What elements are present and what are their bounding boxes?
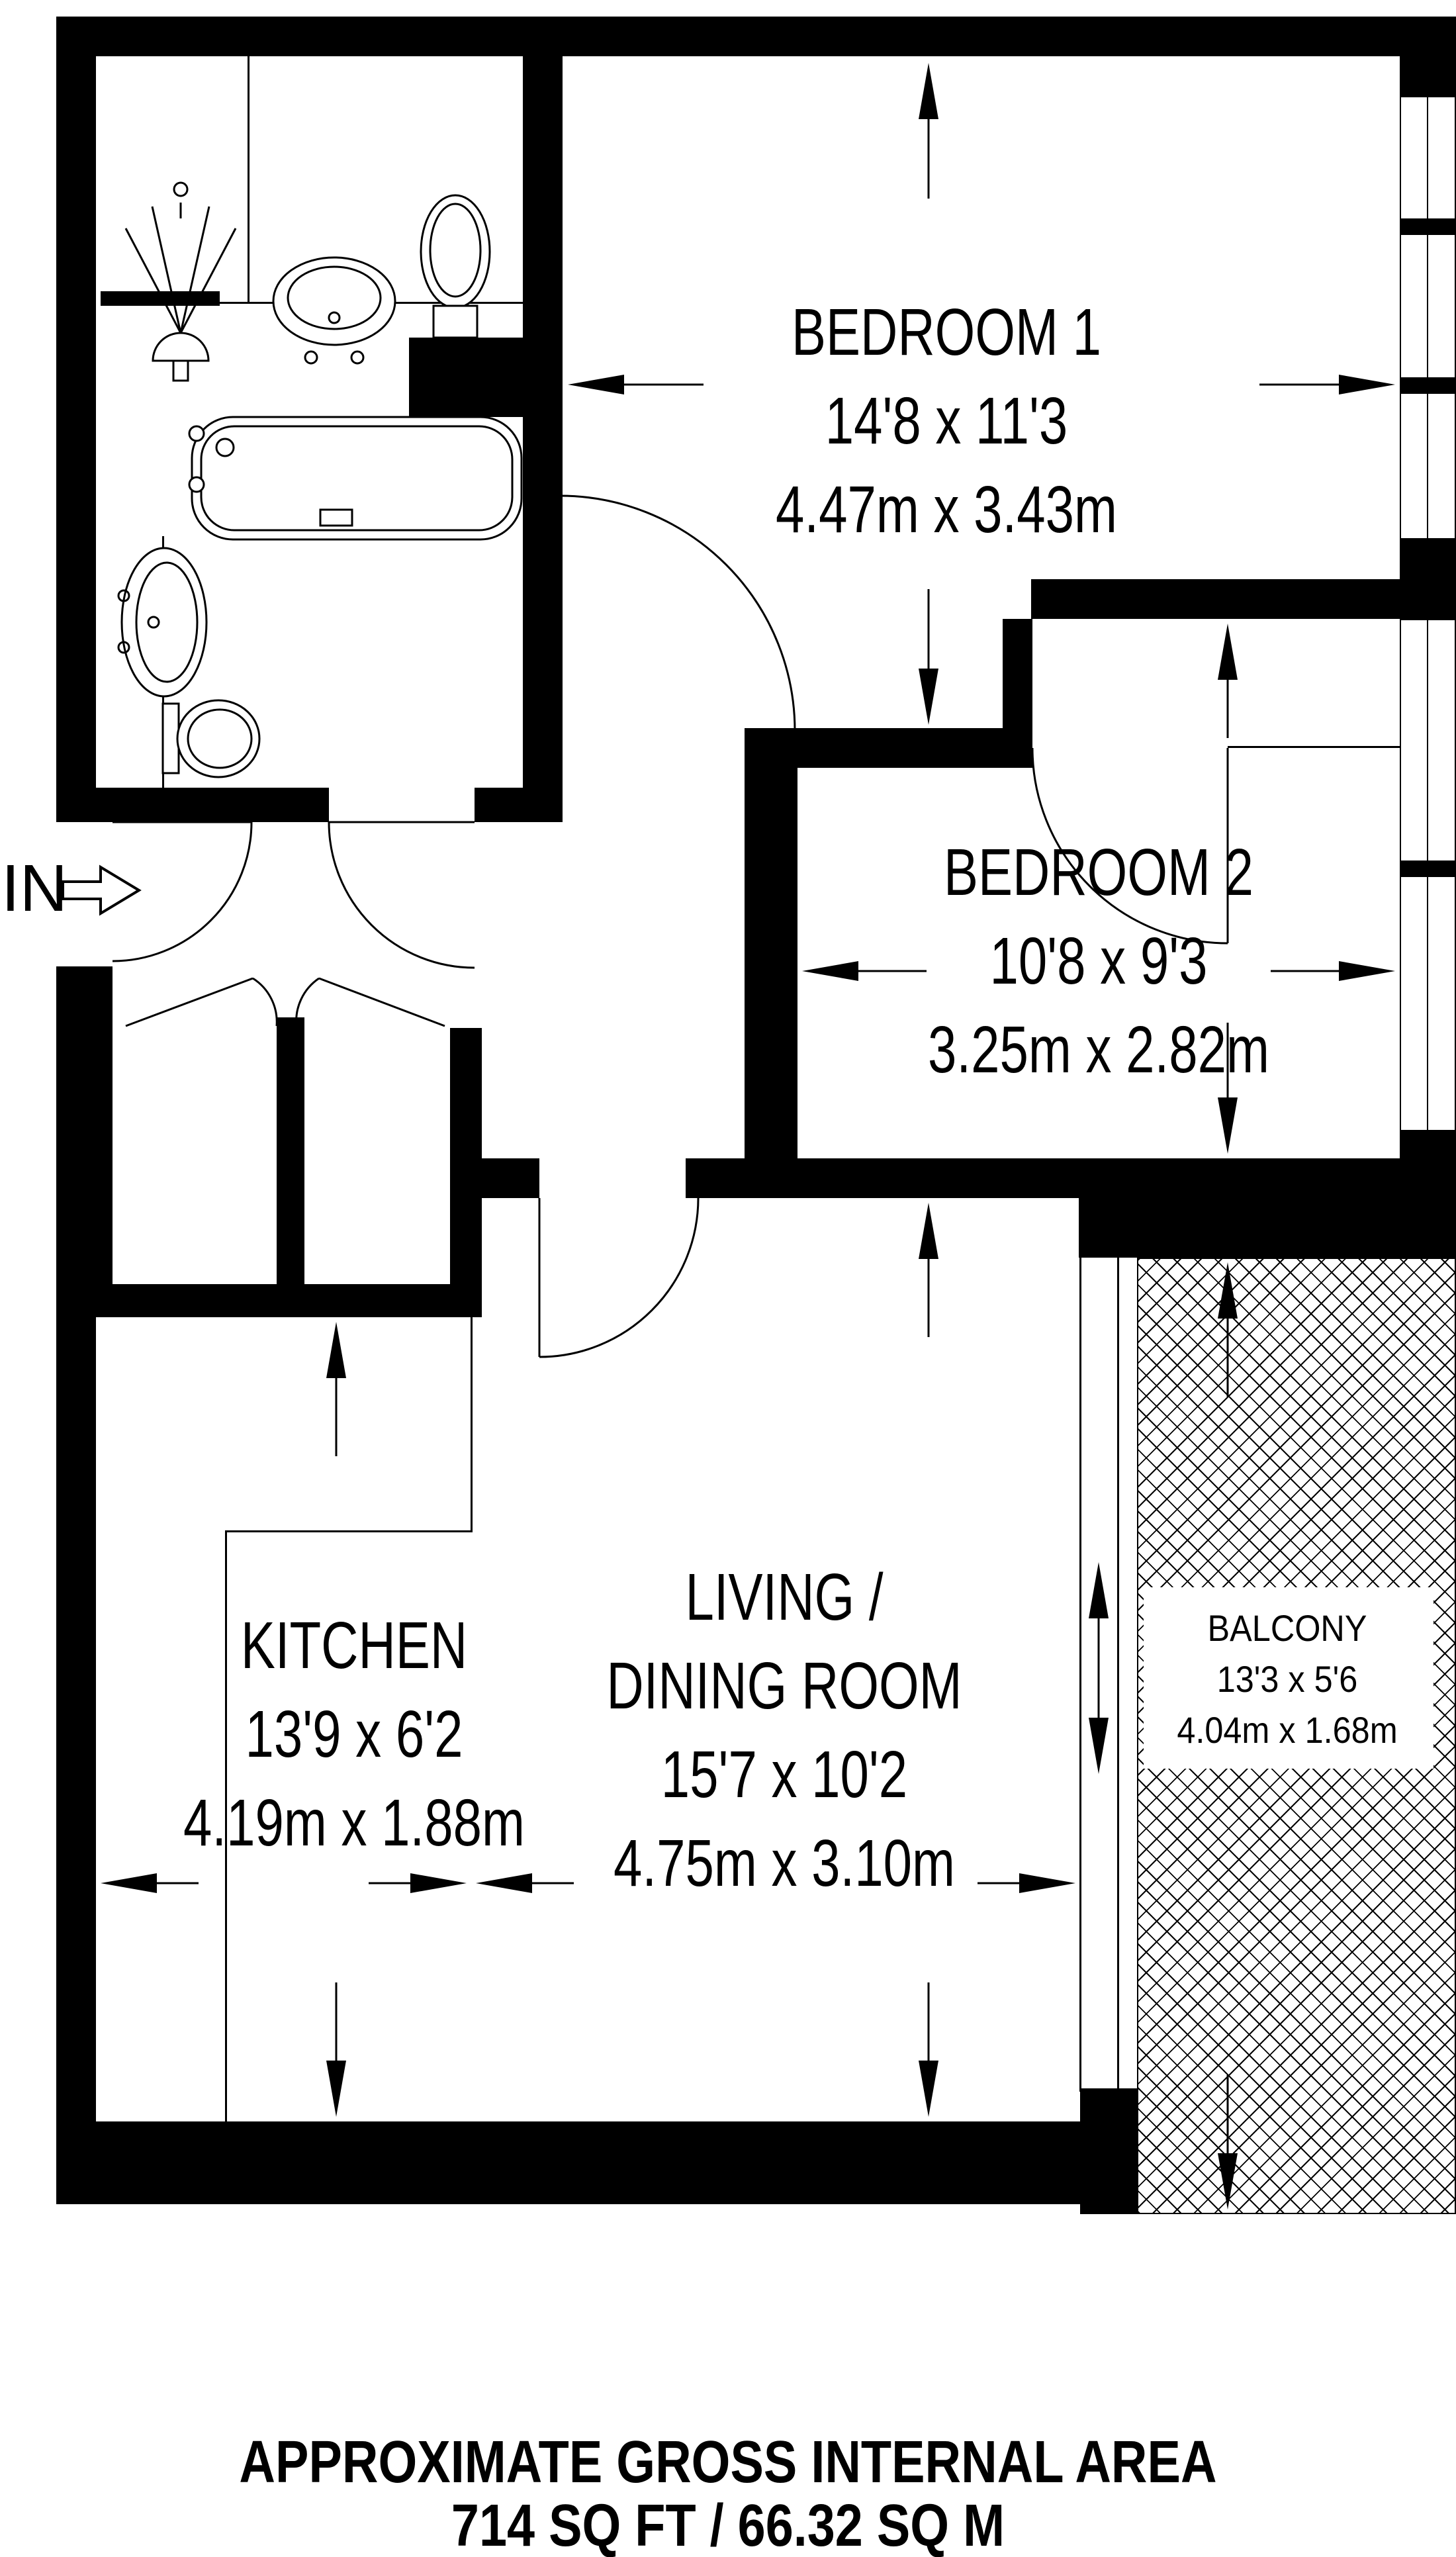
living-door-swing-icon: [539, 1198, 698, 1357]
dimension-arrow-living-left: [476, 1873, 574, 1893]
dimension-arrow-kitchen-up: [326, 1322, 346, 1456]
dimension-arrow-kitchen-left: [101, 1873, 199, 1893]
dimension-arrow-bedroom1-left: [568, 375, 704, 395]
dimension-arrow-kitchen-down: [326, 1982, 346, 2117]
floor-plan: BEDROOM 1 14'8 x 11'3 4.47m x 3.43m BEDR…: [0, 0, 1456, 2557]
washbasin-icon: [118, 548, 206, 696]
dimension-arrow-bedroom2-up: [1218, 624, 1238, 738]
washbasin-icon: [273, 257, 395, 363]
bedroom1-door-swing-icon: [560, 496, 795, 731]
bedroom2-door-swing-icon: [1032, 748, 1228, 943]
dimension-arrow-kitchen-right: [369, 1873, 467, 1893]
dimension-arrow-balcony-up: [1218, 1262, 1238, 1397]
dimension-arrow-balcony-down: [1218, 2075, 1238, 2209]
dimension-arrow-bedroom2-left: [802, 961, 927, 981]
dimension-arrow-bedroom1-right: [1259, 375, 1395, 395]
dimension-arrow-bedroom2-down: [1218, 1023, 1238, 1154]
bathtub-icon: [189, 417, 522, 539]
dimension-arrow-bedroom2-right: [1271, 961, 1395, 981]
dimension-arrow-bedroom1-down: [919, 589, 938, 725]
plan-overlay: [0, 0, 1456, 2557]
dimension-arrow-living-up: [919, 1203, 938, 1337]
entrance-arrow-icon: [63, 867, 139, 913]
toilet-icon: [163, 700, 259, 777]
closet-doors-icon: [126, 978, 445, 1026]
toilet-icon: [421, 195, 490, 338]
dimension-arrow-living-right: [978, 1873, 1075, 1893]
bathroom-door-swing-icon: [329, 822, 475, 968]
double-dimension-arrow-balcony-door: [1089, 1562, 1109, 1774]
dimension-arrow-living-down: [919, 1982, 938, 2117]
dimension-arrow-bedroom1-up: [919, 63, 938, 199]
shower-icon: [126, 183, 236, 381]
